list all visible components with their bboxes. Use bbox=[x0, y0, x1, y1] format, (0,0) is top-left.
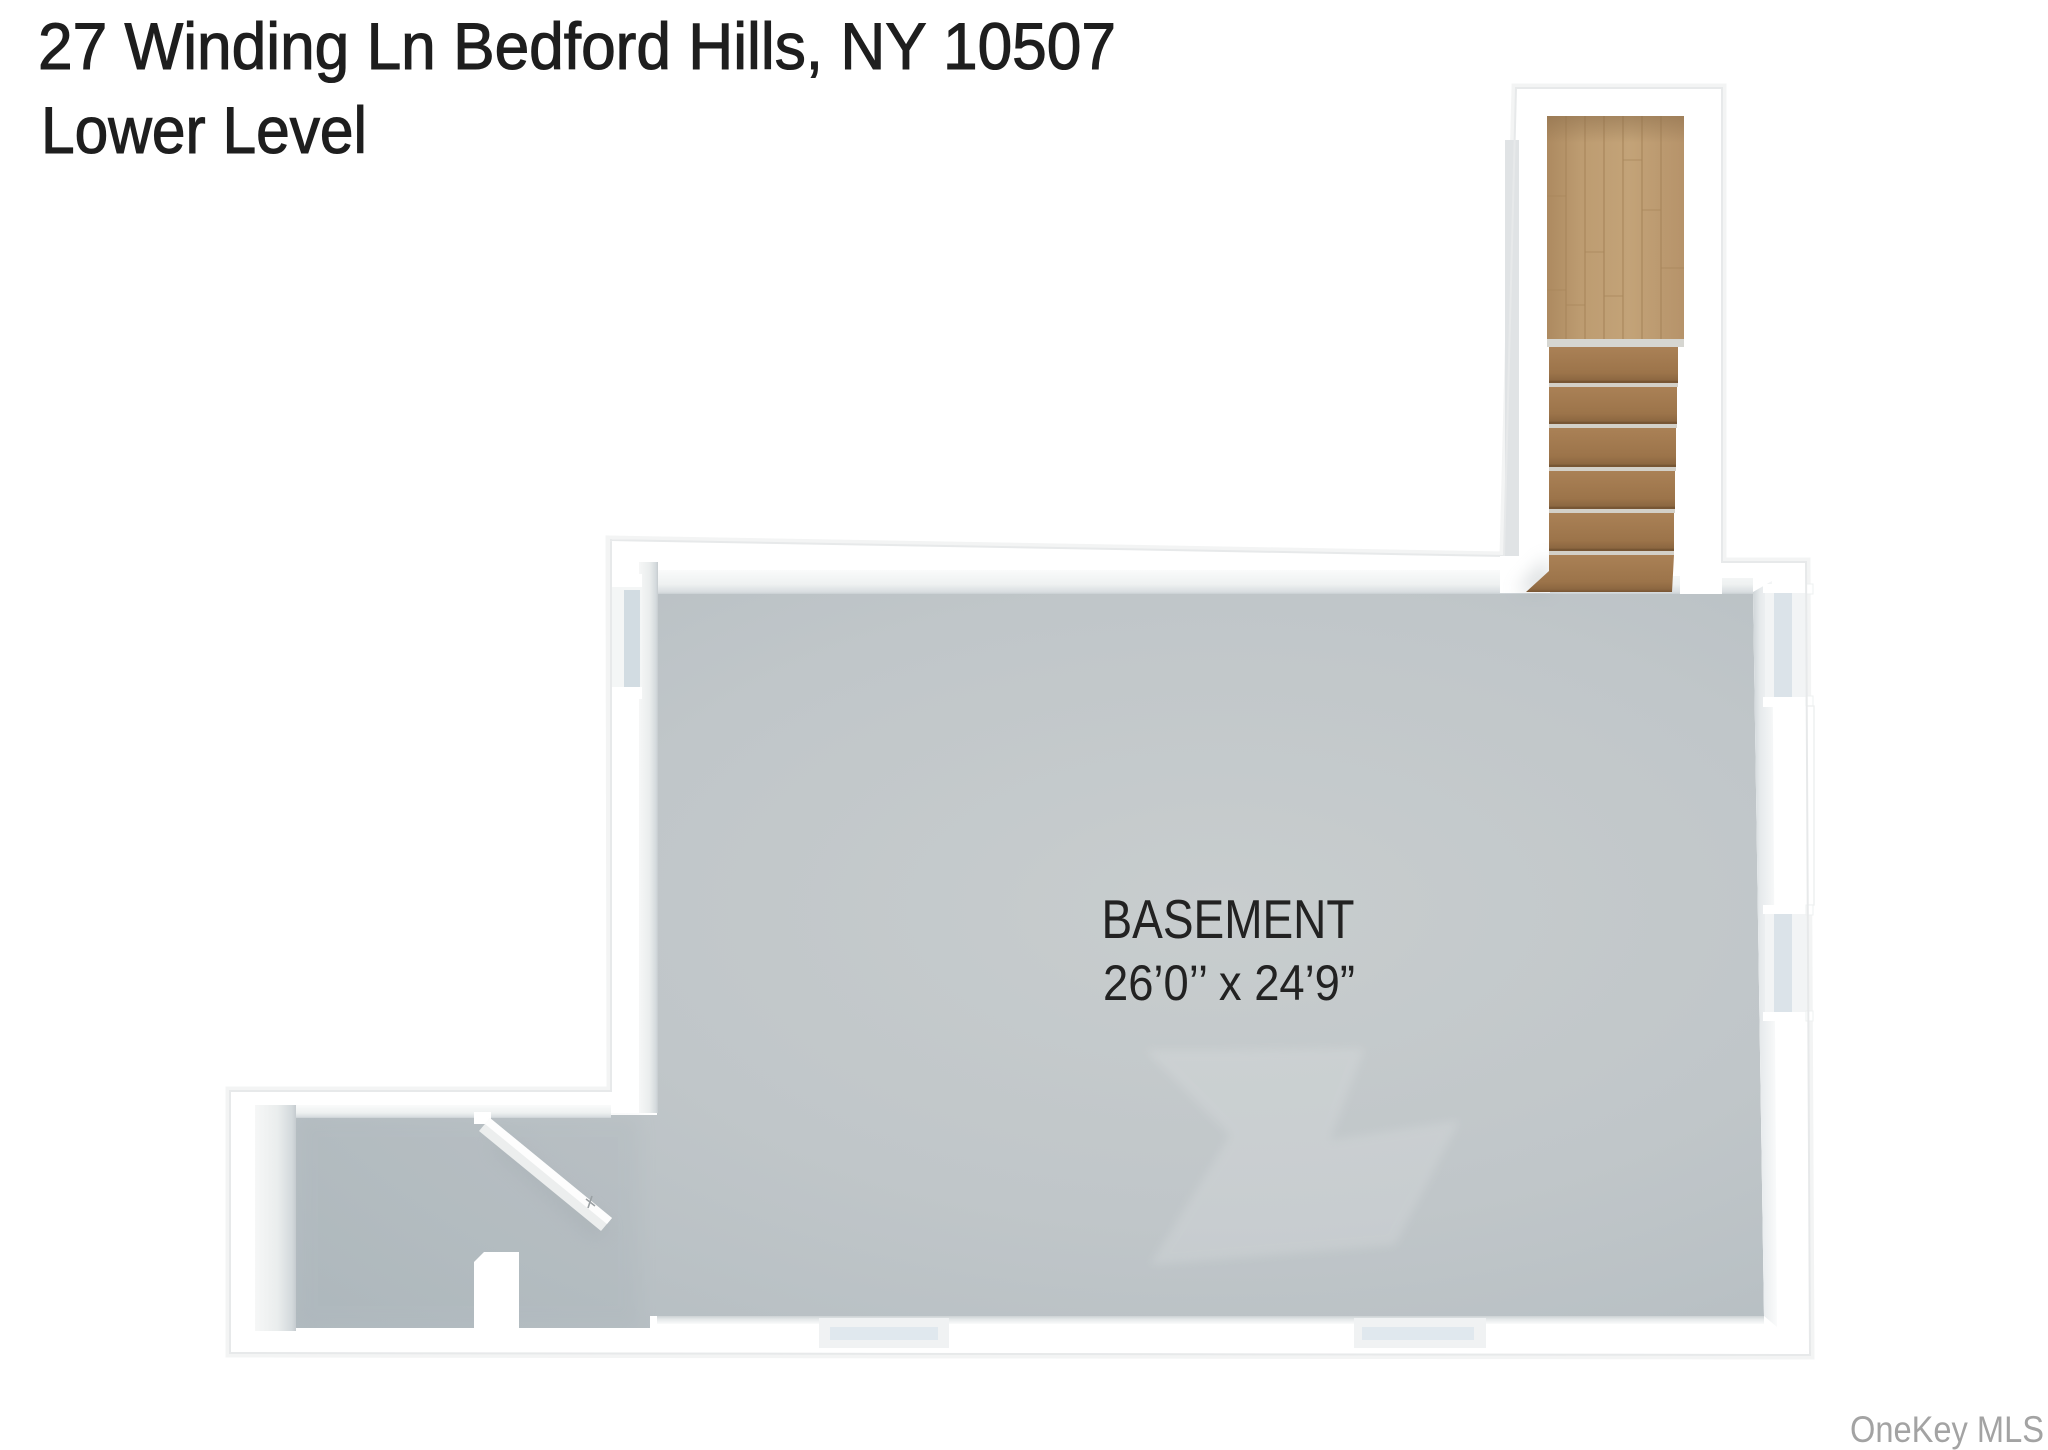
svg-text:26’0’’ x 24’9”: 26’0’’ x 24’9” bbox=[1103, 955, 1355, 1011]
svg-text:Lower Level: Lower Level bbox=[41, 93, 367, 167]
svg-text:BASEMENT: BASEMENT bbox=[1102, 888, 1355, 950]
svg-text:27 Winding Ln Bedford Hills, N: 27 Winding Ln Bedford Hills, NY 10507 bbox=[38, 9, 1116, 83]
svg-text:OneKey MLS: OneKey MLS bbox=[1850, 1409, 2044, 1450]
